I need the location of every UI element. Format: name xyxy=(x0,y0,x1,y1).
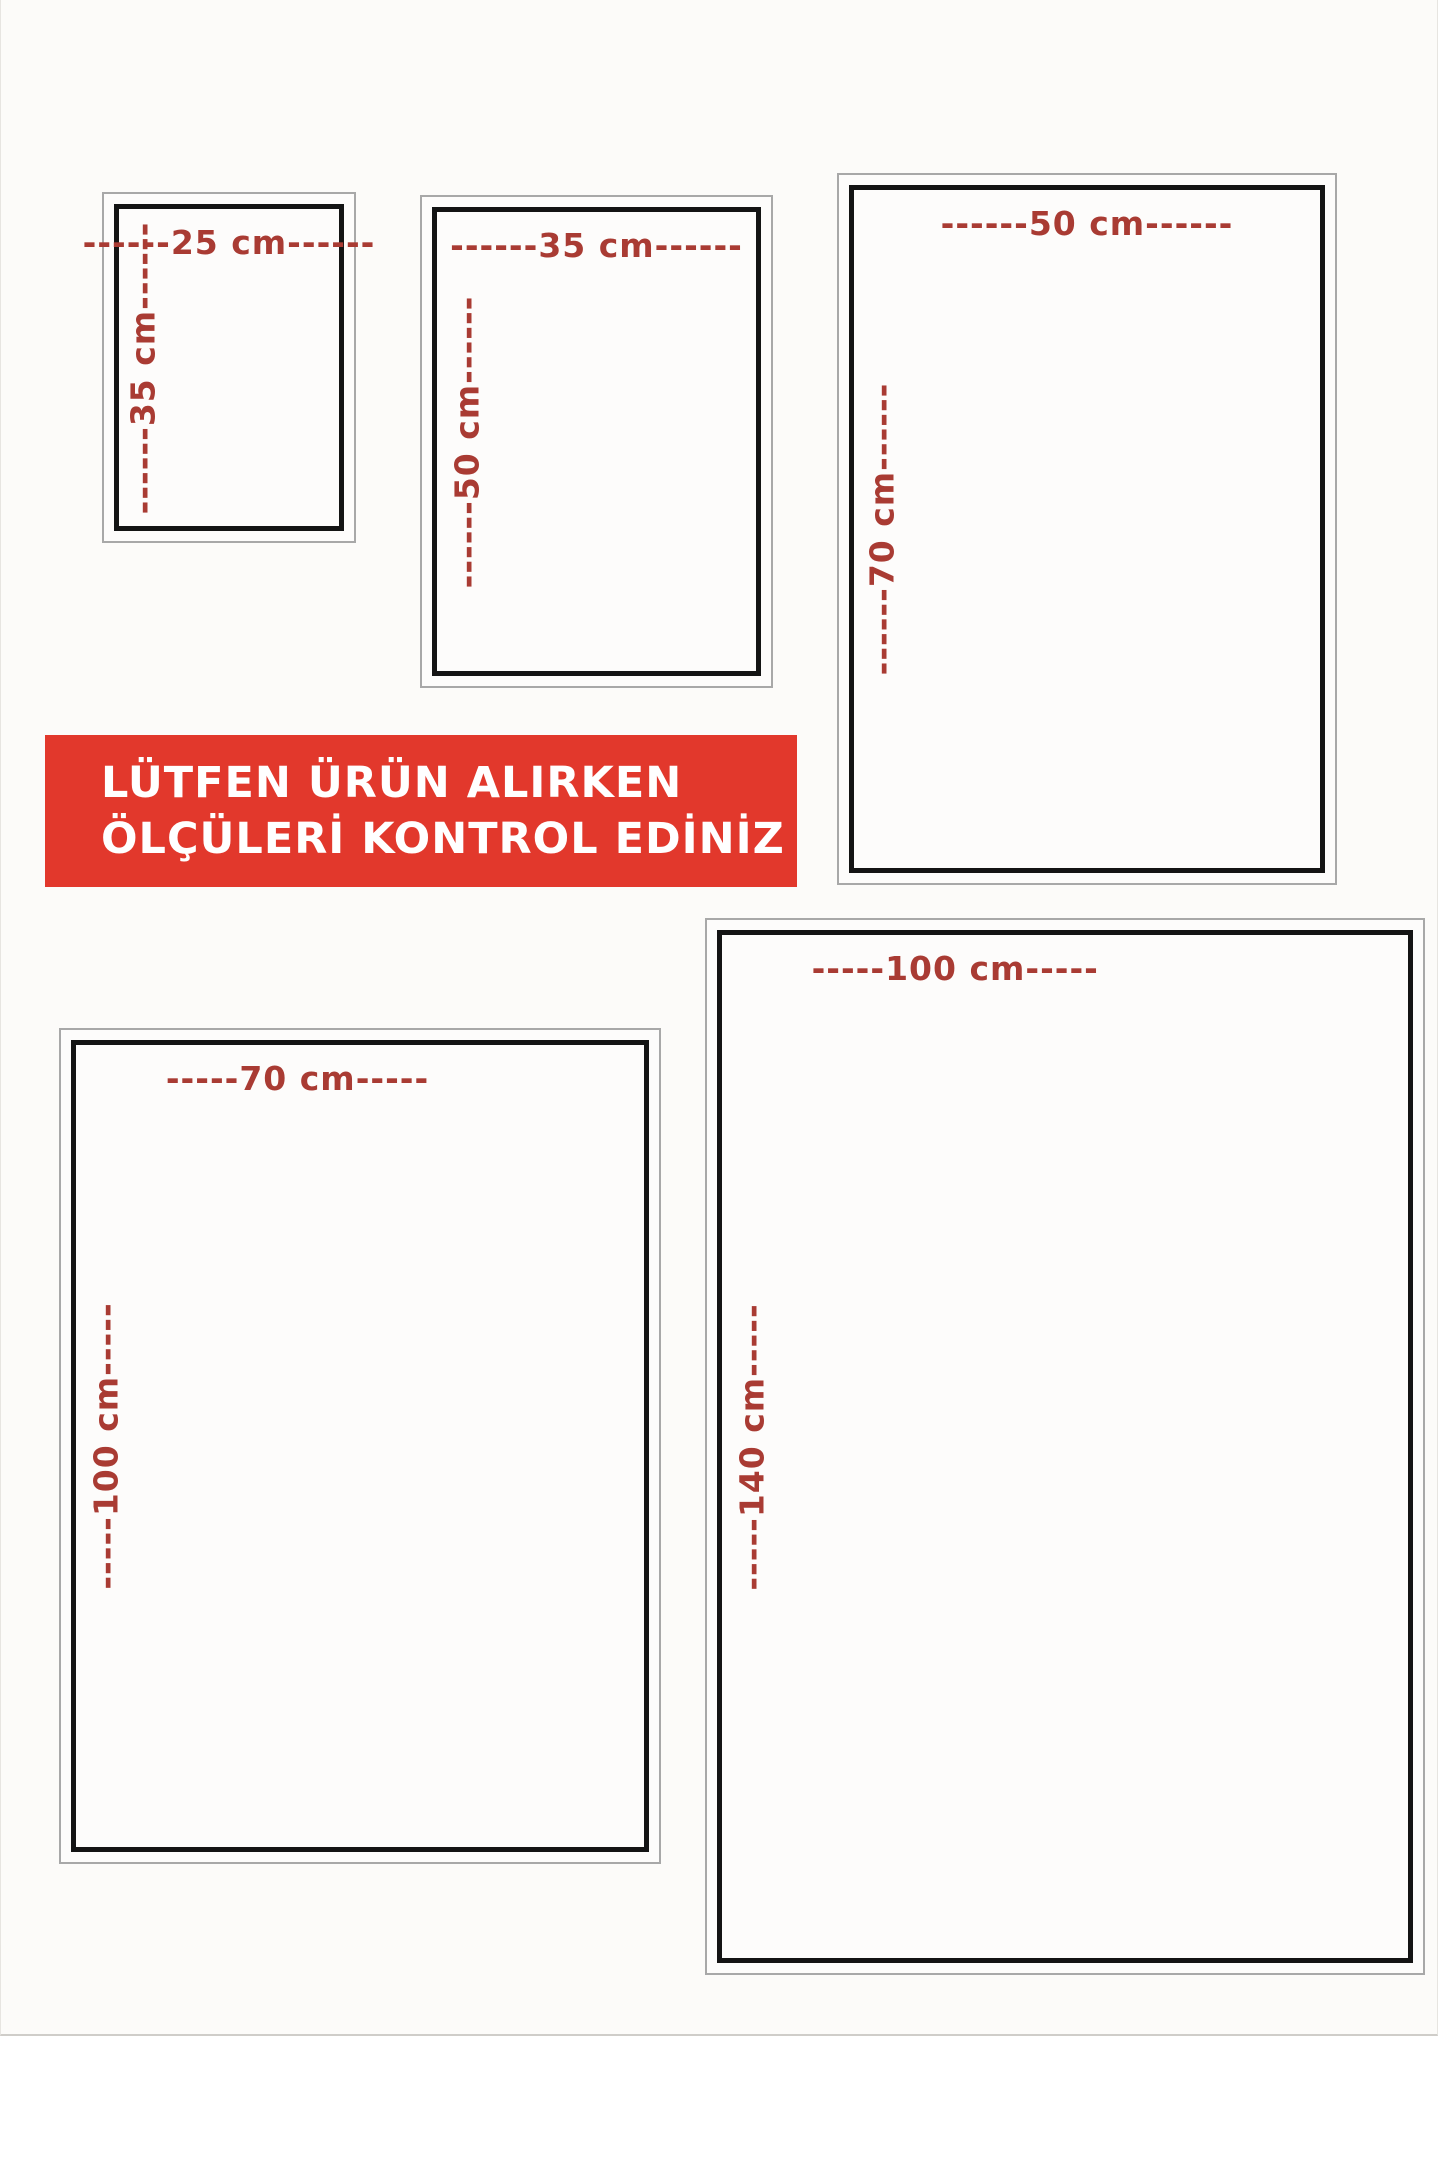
width-label-100cm: -----100 cm----- xyxy=(812,949,1099,988)
size-box-25x35: ------25 cm------ ------35 cm------ xyxy=(102,192,356,543)
width-label-50cm: ------50 cm------ xyxy=(941,204,1234,243)
height-label-35cm: ------35 cm------ xyxy=(124,221,163,514)
size-box-35x50-inner: ------35 cm------ ------50 cm------ xyxy=(432,207,761,676)
width-label-70cm: -----70 cm----- xyxy=(166,1059,429,1098)
height-label-100cm: -----100 cm----- xyxy=(87,1302,126,1589)
size-box-100x140-inner: -----100 cm----- -----140 cm----- xyxy=(717,930,1413,1963)
size-box-25x35-inner: ------25 cm------ ------35 cm------ xyxy=(114,204,344,531)
size-box-100x140: -----100 cm----- -----140 cm----- xyxy=(705,918,1425,1975)
size-box-70x100-inner: -----70 cm----- -----100 cm----- xyxy=(71,1040,649,1852)
size-box-70x100: -----70 cm----- -----100 cm----- xyxy=(59,1028,661,1864)
size-box-50x70: ------50 cm------ ------70 cm------ xyxy=(837,173,1337,885)
width-label-35cm: ------35 cm------ xyxy=(450,226,743,265)
height-label-140cm: -----140 cm----- xyxy=(733,1303,772,1590)
height-label-70cm: ------70 cm------ xyxy=(863,383,902,676)
warning-banner-line-2: ÖLÇÜLERİ KONTROL EDİNİZ xyxy=(101,811,797,867)
size-box-50x70-inner: ------50 cm------ ------70 cm------ xyxy=(849,185,1325,873)
warning-banner-line-1: LÜTFEN ÜRÜN ALIRKEN xyxy=(101,755,797,811)
warning-banner: LÜTFEN ÜRÜN ALIRKEN ÖLÇÜLERİ KONTROL EDİ… xyxy=(45,735,797,887)
size-box-35x50: ------35 cm------ ------50 cm------ xyxy=(420,195,773,688)
height-label-50cm: ------50 cm------ xyxy=(448,295,487,588)
